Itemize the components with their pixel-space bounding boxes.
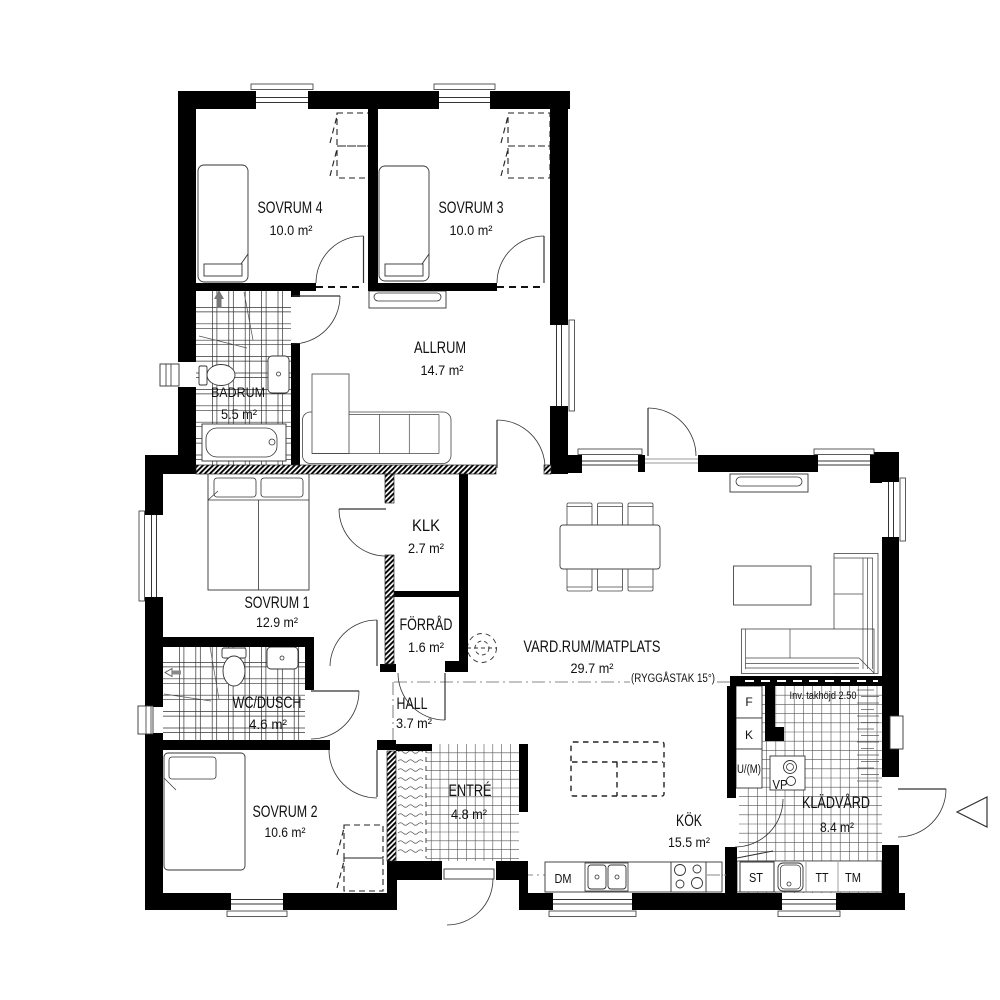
svg-text:12.9 m²: 12.9 m² bbox=[256, 614, 298, 630]
svg-text:FÖRRÅD: FÖRRÅD bbox=[400, 615, 453, 634]
svg-text:VP: VP bbox=[773, 778, 788, 792]
svg-text:WC/DUSCH: WC/DUSCH bbox=[233, 694, 302, 712]
svg-text:SOVRUM 4: SOVRUM 4 bbox=[258, 199, 323, 217]
svg-text:ST: ST bbox=[749, 871, 763, 885]
svg-text:4.6 m²: 4.6 m² bbox=[249, 716, 287, 732]
svg-text:TM: TM bbox=[845, 871, 861, 885]
svg-text:DM: DM bbox=[555, 872, 572, 886]
svg-text:10.6 m²: 10.6 m² bbox=[265, 824, 306, 840]
svg-text:8.4 m²: 8.4 m² bbox=[820, 819, 854, 835]
svg-text:ALLRUM: ALLRUM bbox=[414, 339, 466, 357]
svg-text:SOVRUM 3: SOVRUM 3 bbox=[439, 199, 504, 217]
svg-text:KLÄDVÅRD: KLÄDVÅRD bbox=[802, 793, 870, 812]
svg-text:KÖK: KÖK bbox=[676, 812, 702, 830]
svg-text:F: F bbox=[745, 695, 752, 709]
svg-text:U/(M): U/(M) bbox=[737, 764, 761, 776]
svg-text:BADRUM: BADRUM bbox=[211, 384, 265, 400]
svg-text:(RYGGÅSTAK 15°): (RYGGÅSTAK 15°) bbox=[631, 672, 715, 685]
svg-text:ENTRÉ: ENTRÉ bbox=[449, 781, 492, 800]
svg-text:SOVRUM 2: SOVRUM 2 bbox=[253, 803, 318, 821]
svg-text:4.8 m²: 4.8 m² bbox=[451, 806, 487, 822]
svg-text:2.7 m²: 2.7 m² bbox=[408, 540, 444, 556]
svg-text:KLK: KLK bbox=[412, 517, 440, 535]
svg-text:Inv. takhöjd 2.50: Inv. takhöjd 2.50 bbox=[790, 690, 857, 702]
svg-text:VARD.RUM/MATPLATS: VARD.RUM/MATPLATS bbox=[524, 638, 661, 656]
svg-text:TT: TT bbox=[816, 871, 829, 885]
svg-text:K: K bbox=[745, 728, 753, 742]
svg-text:15.5 m²: 15.5 m² bbox=[668, 834, 710, 850]
svg-text:SOVRUM 1: SOVRUM 1 bbox=[245, 594, 310, 612]
svg-text:HALL: HALL bbox=[397, 695, 428, 713]
svg-text:10.0 m²: 10.0 m² bbox=[450, 222, 493, 238]
svg-text:10.0 m²: 10.0 m² bbox=[270, 222, 313, 238]
svg-text:29.7 m²: 29.7 m² bbox=[571, 660, 614, 676]
svg-text:5.5 m²: 5.5 m² bbox=[221, 406, 257, 422]
svg-text:14.7 m²: 14.7 m² bbox=[421, 362, 464, 378]
svg-text:3.7 m²: 3.7 m² bbox=[396, 715, 432, 731]
svg-text:1.6 m²: 1.6 m² bbox=[408, 639, 444, 655]
